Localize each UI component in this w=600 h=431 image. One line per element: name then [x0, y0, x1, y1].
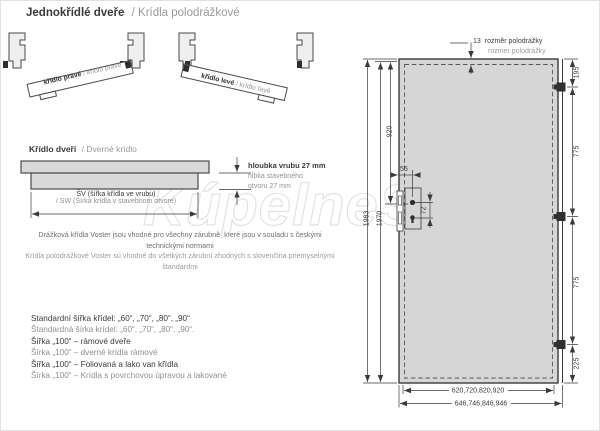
rebate-dim-label: 13rozměr polodrážky rozmer polodrážky [473, 37, 546, 57]
dim-handle-height: 920 [386, 117, 395, 147]
dim-outer-widths: 646,746,846,946 [452, 401, 511, 408]
leaf-section-heading: Křídlo dveří / Dverné krídlo [29, 144, 137, 154]
dim-lock-backset: 55 [400, 166, 408, 173]
leaf-section-heading-cz: Křídlo dveří [29, 144, 76, 154]
rebate-marks [3, 61, 302, 68]
frame-profile-icon [9, 33, 25, 68]
dim-hinge-bottom: 225 [573, 349, 582, 379]
width-note-cz: ŠV (šířka křídla ve vrubu) [41, 191, 191, 198]
dim-leaf-height: 1970 [376, 204, 385, 234]
page-title-cz: Jednokřídlé dveře [26, 7, 124, 19]
depth-note-sk-1: hĺbka stavebného [248, 173, 303, 180]
door-technical-drawing [363, 43, 578, 408]
catalog-page: KúpelneSK Jednokřídlé dveře / Krídla pol… [0, 0, 600, 431]
rebate-dim-value: 13 [473, 38, 481, 45]
page-title-sk: / Krídla polodrážkové [132, 7, 240, 19]
depth-note-cz: hloubka vrubu 27 mm [248, 161, 326, 170]
width-note: ŠV (šířka křídla ve vrubu) / SW (Šírka k… [41, 191, 191, 205]
depth-note-sk-2: otvoru 27 mm [248, 183, 291, 190]
leaf-edge-diagram [21, 157, 251, 218]
page-title: Jednokřídlé dveře / Krídla polodrážkové [26, 7, 240, 19]
dim-hinge-gap-upper: 775 [573, 137, 582, 167]
dim-hinge-gap-lower: 775 [573, 268, 582, 298]
rebate-dim-label-cz: rozměr polodrážky [485, 38, 543, 45]
rebate-dim-label-sk: rozmer polodrážky [488, 48, 546, 55]
dim-hinge-top: 195 [573, 58, 582, 88]
width-note-sk: / SW (Šírka krídla v stavebnom otvore) [41, 198, 191, 205]
dim-leaf-widths: 620,720,820,920 [449, 388, 508, 395]
handle-spindle-icon [410, 200, 415, 205]
leaf-section-heading-sk: / Dverné krídlo [82, 144, 137, 154]
dim-handle-key-distance: 72 [420, 196, 429, 226]
dim-total-height: 1983 [363, 204, 372, 234]
